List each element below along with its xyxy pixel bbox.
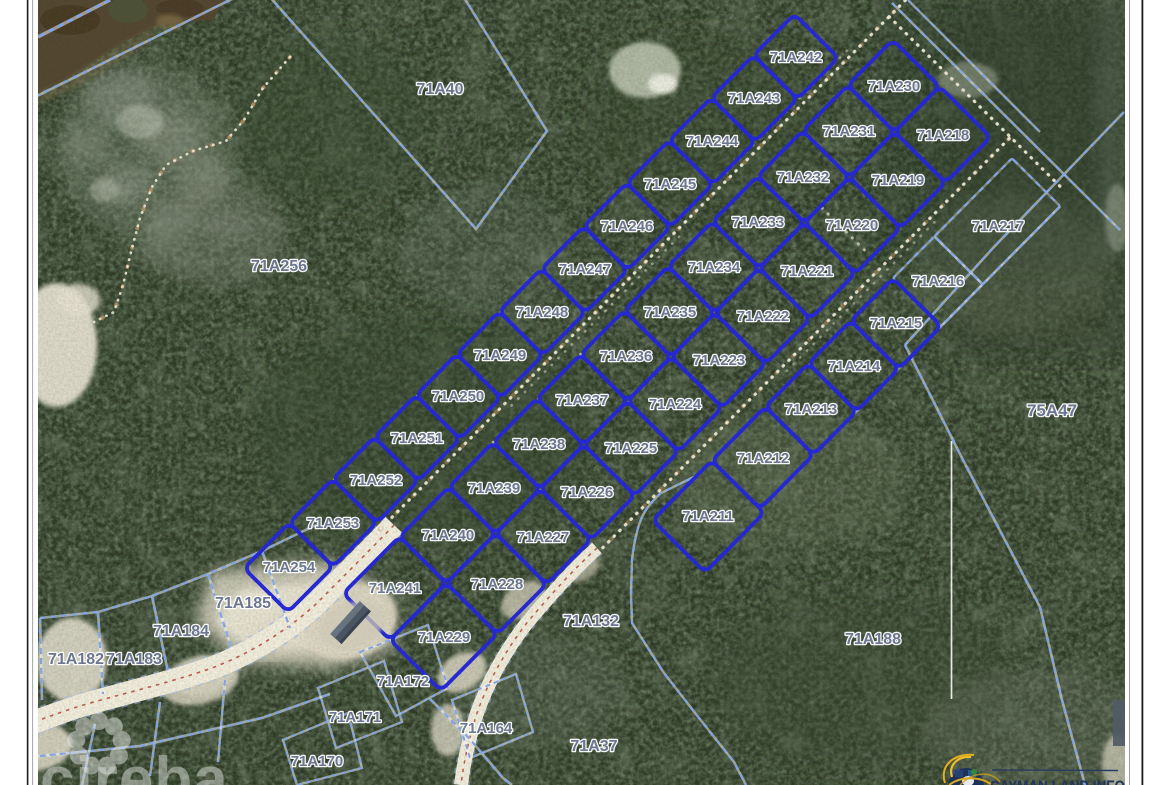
svg-text:71A218: 71A218	[917, 127, 970, 144]
svg-text:71A215: 71A215	[870, 315, 923, 332]
svg-text:71A132: 71A132	[563, 613, 619, 630]
svg-text:71A184: 71A184	[153, 623, 209, 640]
svg-text:75A47: 75A47	[1027, 401, 1077, 420]
svg-text:71A211: 71A211	[682, 508, 734, 525]
svg-text:71A233: 71A233	[732, 214, 785, 231]
svg-text:71A227: 71A227	[517, 529, 570, 546]
svg-text:71A216: 71A216	[912, 273, 965, 290]
svg-text:71A239: 71A239	[468, 480, 521, 497]
svg-text:71A251: 71A251	[391, 430, 444, 447]
svg-text:71A248: 71A248	[516, 304, 569, 321]
svg-text:71A247: 71A247	[559, 261, 612, 278]
svg-text:71A243: 71A243	[728, 90, 781, 107]
svg-text:71A254: 71A254	[263, 559, 316, 576]
svg-text:71A225: 71A225	[605, 440, 658, 457]
svg-text:71A241: 71A241	[369, 580, 422, 597]
svg-text:71A250: 71A250	[432, 388, 485, 405]
svg-text:71A244: 71A244	[686, 133, 739, 150]
svg-text:71A217: 71A217	[972, 218, 1025, 235]
svg-text:71A246: 71A246	[601, 218, 654, 235]
svg-text:71A226: 71A226	[561, 484, 614, 501]
svg-text:71A185: 71A185	[215, 595, 271, 612]
svg-text:71A253: 71A253	[307, 515, 360, 532]
svg-text:71A232: 71A232	[777, 169, 830, 186]
svg-text:71A235: 71A235	[644, 304, 697, 321]
svg-text:71A242: 71A242	[770, 49, 823, 66]
svg-text:71A220: 71A220	[826, 217, 879, 234]
svg-text:CAYMAN LAND INFO: CAYMAN LAND INFO	[990, 777, 1125, 785]
svg-text:71A222: 71A222	[737, 308, 790, 325]
svg-text:71A224: 71A224	[649, 396, 702, 413]
svg-text:71A170: 71A170	[291, 753, 344, 770]
svg-text:71A249: 71A249	[474, 347, 527, 364]
svg-text:71A183: 71A183	[106, 651, 162, 668]
svg-text:71A256: 71A256	[251, 258, 307, 275]
svg-text:71A214: 71A214	[828, 358, 881, 375]
svg-text:71A234: 71A234	[688, 259, 741, 276]
svg-text:71A237: 71A237	[556, 392, 609, 409]
svg-text:71A212: 71A212	[737, 450, 790, 467]
svg-text:71A213: 71A213	[785, 401, 838, 418]
svg-text:71A221: 71A221	[781, 263, 834, 280]
svg-text:71A172: 71A172	[377, 673, 430, 690]
svg-text:cireba: cireba	[40, 745, 229, 785]
svg-text:71A236: 71A236	[600, 348, 653, 365]
svg-text:71A238: 71A238	[513, 436, 566, 453]
svg-text:71A182: 71A182	[48, 651, 104, 668]
svg-text:71A40: 71A40	[416, 81, 463, 98]
svg-text:71A231: 71A231	[823, 123, 876, 140]
svg-text:71A219: 71A219	[872, 172, 925, 189]
svg-text:71A228: 71A228	[471, 576, 524, 593]
svg-text:71A171: 71A171	[329, 709, 382, 726]
svg-text:71A230: 71A230	[868, 78, 921, 95]
svg-text:71A223: 71A223	[693, 352, 746, 369]
svg-text:71A240: 71A240	[422, 527, 475, 544]
svg-text:71A164: 71A164	[460, 720, 513, 737]
svg-text:71A37: 71A37	[570, 738, 617, 755]
svg-text:71A245: 71A245	[644, 176, 697, 193]
svg-text:71A229: 71A229	[418, 629, 471, 646]
svg-text:71A252: 71A252	[350, 472, 403, 489]
svg-text:71A188: 71A188	[845, 631, 901, 648]
